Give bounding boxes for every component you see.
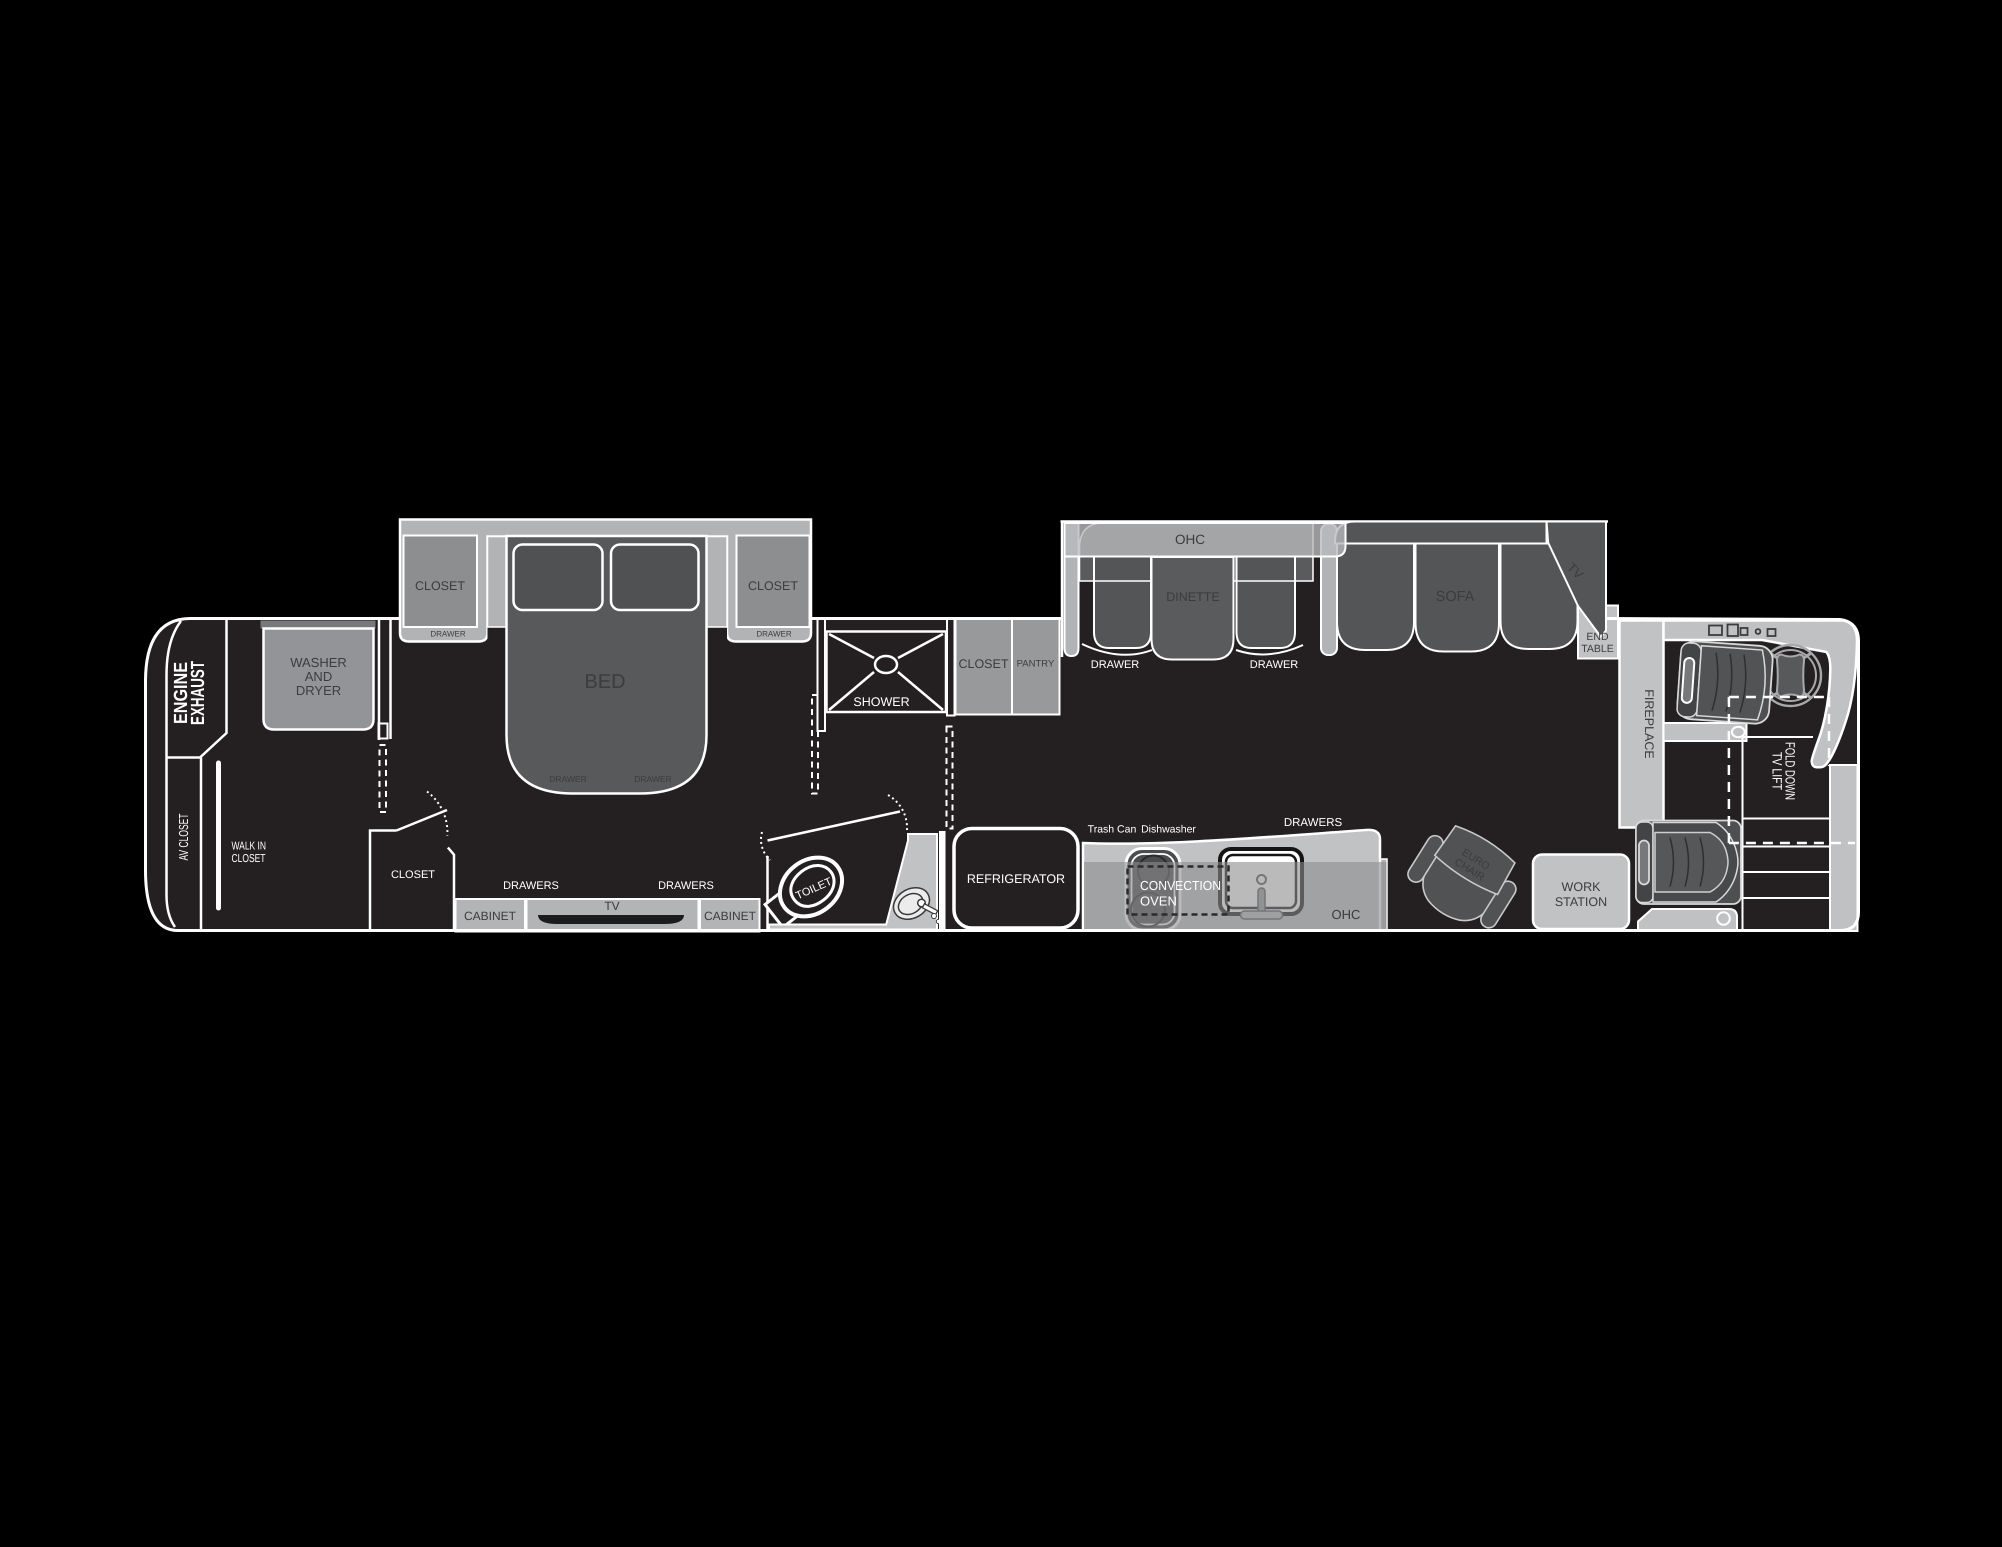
svg-text:DRAWERS: DRAWERS (658, 880, 714, 892)
svg-text:CLOSET: CLOSET (748, 579, 798, 593)
svg-text:DRAWER: DRAWER (1091, 659, 1140, 671)
svg-text:CABINET: CABINET (704, 909, 757, 923)
svg-text:WALK IN: WALK IN (232, 841, 267, 853)
svg-text:TABLE: TABLE (1581, 643, 1613, 655)
svg-text:WASHER: WASHER (290, 655, 347, 670)
svg-text:DRAWERS: DRAWERS (1284, 817, 1343, 829)
svg-text:CABINET: CABINET (464, 909, 517, 923)
svg-text:REFRIGERATOR: REFRIGERATOR (967, 872, 1065, 886)
svg-text:OHC: OHC (1332, 907, 1361, 922)
svg-text:Trash Can: Trash Can (1088, 824, 1137, 836)
svg-text:CLOSET: CLOSET (415, 579, 465, 593)
svg-text:DRAWER: DRAWER (430, 630, 465, 639)
svg-text:Dishwasher: Dishwasher (1141, 824, 1196, 836)
svg-text:DRAWER: DRAWER (1250, 659, 1299, 671)
svg-text:PANTRY: PANTRY (1017, 659, 1055, 670)
svg-text:SOFA: SOFA (1436, 589, 1475, 605)
svg-text:DRYER: DRYER (296, 683, 341, 698)
svg-text:AV CLOSET: AV CLOSET (176, 813, 191, 860)
svg-text:DRAWER: DRAWER (756, 630, 791, 639)
svg-text:TV: TV (604, 899, 619, 913)
svg-text:CLOSET: CLOSET (391, 869, 435, 881)
svg-text:STATION: STATION (1555, 895, 1607, 909)
svg-text:OVEN: OVEN (1140, 894, 1177, 909)
svg-text:SHOWER: SHOWER (853, 695, 909, 709)
svg-text:DINETTE: DINETTE (1166, 590, 1219, 604)
svg-text:DRAWER: DRAWER (634, 774, 671, 784)
svg-text:DRAWER: DRAWER (549, 774, 586, 784)
svg-text:DRAWERS: DRAWERS (503, 880, 559, 892)
svg-text:END: END (1586, 631, 1609, 643)
svg-text:OHC: OHC (1175, 532, 1205, 547)
svg-text:ENGINEEXHAUST: ENGINEEXHAUST (171, 661, 209, 725)
svg-text:CLOSET: CLOSET (958, 657, 1008, 671)
svg-text:FIREPLACE: FIREPLACE (1642, 689, 1656, 758)
svg-text:CONVECTION: CONVECTION (1140, 878, 1221, 893)
svg-text:CLOSET: CLOSET (232, 853, 266, 865)
svg-text:WORK: WORK (1562, 880, 1602, 894)
svg-text:BED: BED (584, 671, 625, 693)
svg-text:AND: AND (305, 669, 332, 684)
